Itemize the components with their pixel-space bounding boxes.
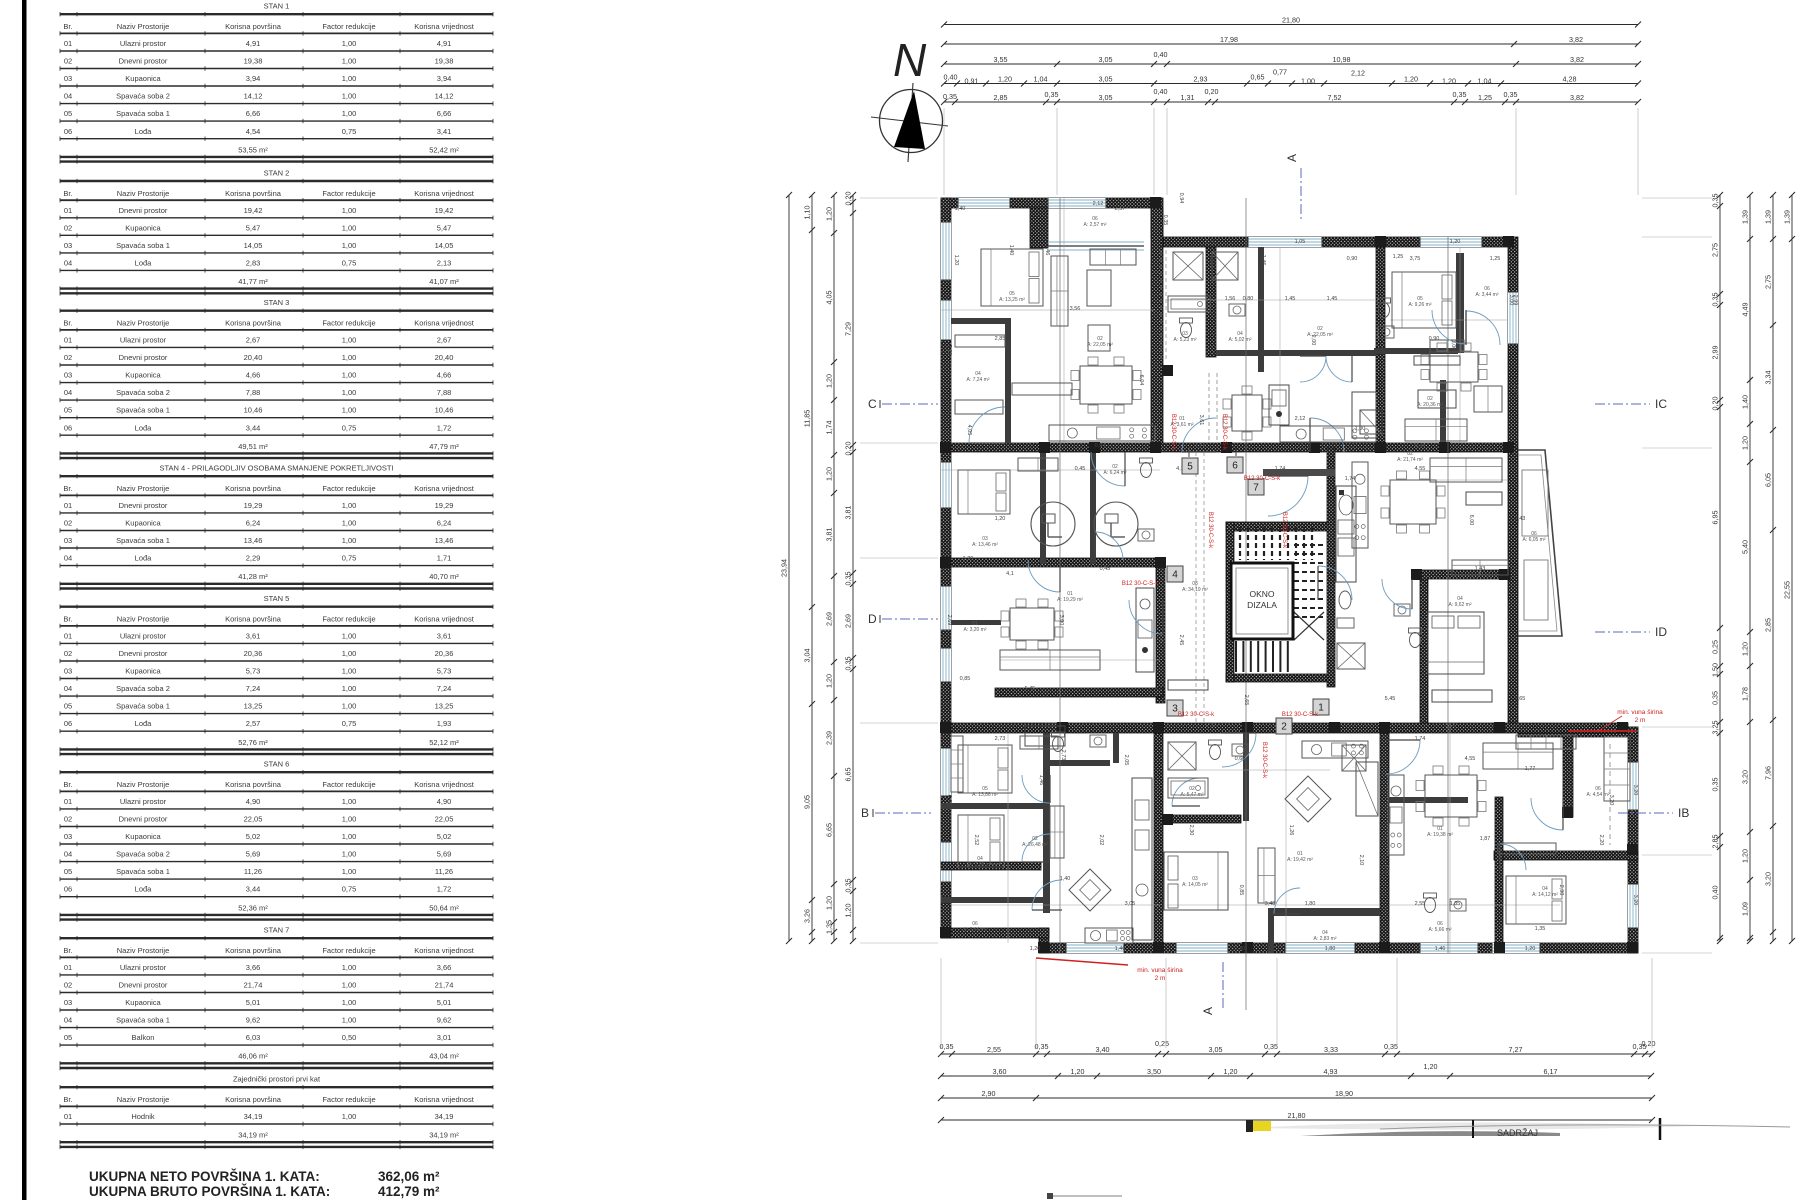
svg-text:0,40: 0,40: [944, 73, 958, 82]
svg-text:Zajednički prostori prvi kat: Zajednički prostori prvi kat: [233, 1075, 321, 1084]
svg-text:1,04: 1,04: [1034, 75, 1048, 84]
svg-text:04: 04: [64, 259, 72, 268]
svg-text:3,61: 3,61: [1198, 415, 1204, 426]
svg-text:6: 6: [1232, 461, 1238, 472]
svg-text:2,30: 2,30: [1188, 825, 1194, 836]
svg-text:4,91: 4,91: [246, 39, 261, 48]
svg-text:1,74: 1,74: [1415, 736, 1426, 742]
svg-text:2,12: 2,12: [1295, 416, 1306, 422]
svg-text:3,48: 3,48: [1265, 901, 1276, 907]
svg-text:7,88: 7,88: [246, 388, 261, 397]
svg-text:A: 6,24 m²: A: 6,24 m²: [1103, 470, 1126, 476]
svg-text:4,05: 4,05: [825, 291, 834, 305]
svg-text:13,25: 13,25: [435, 702, 454, 711]
svg-text:1,46: 1,46: [1115, 946, 1126, 952]
svg-text:0,35: 0,35: [940, 1042, 954, 1051]
svg-text:Korisna površina: Korisna površina: [225, 484, 282, 493]
svg-text:3,34: 3,34: [1764, 371, 1773, 385]
svg-text:A: 9,26 m²: A: 9,26 m²: [1408, 302, 1431, 308]
svg-text:03: 03: [64, 998, 72, 1007]
svg-text:06: 06: [64, 127, 72, 136]
svg-text:2,55: 2,55: [987, 1045, 1001, 1054]
svg-text:1,40: 1,40: [1008, 245, 1014, 256]
svg-text:1,20: 1,20: [1205, 723, 1216, 729]
svg-text:3,50: 3,50: [1147, 1067, 1161, 1076]
svg-text:3,05: 3,05: [1099, 93, 1113, 102]
svg-text:D: D: [868, 612, 877, 626]
svg-text:A: 6,05 m²: A: 6,05 m²: [1522, 537, 1545, 543]
svg-text:6,05: 6,05: [1764, 473, 1773, 487]
svg-text:5,45: 5,45: [1415, 443, 1426, 449]
svg-text:1,35: 1,35: [825, 920, 834, 934]
svg-text:STAN 7: STAN 7: [264, 926, 290, 935]
svg-text:0,35: 0,35: [844, 657, 853, 671]
svg-text:3,82: 3,82: [1569, 35, 1583, 44]
svg-text:1,71: 1,71: [437, 554, 452, 563]
svg-text:Kupaonica: Kupaonica: [125, 223, 161, 232]
svg-text:19,42: 19,42: [244, 206, 263, 215]
svg-text:1,39: 1,39: [1764, 210, 1773, 224]
svg-text:11,85: 11,85: [803, 410, 812, 427]
svg-text:1,74: 1,74: [1195, 443, 1206, 449]
svg-text:Spavaća soba 1: Spavaća soba 1: [116, 702, 170, 711]
svg-text:Lođa: Lođa: [135, 554, 153, 563]
svg-text:0,75: 0,75: [342, 423, 357, 432]
svg-text:1,46: 1,46: [1260, 255, 1266, 266]
svg-text:1,00: 1,00: [342, 1112, 357, 1121]
svg-text:Hodnik: Hodnik: [131, 1112, 155, 1121]
svg-text:1,46: 1,46: [1435, 946, 1446, 952]
svg-text:A: 13,46 m²: A: 13,46 m²: [972, 542, 998, 548]
svg-text:22,05: 22,05: [435, 815, 454, 824]
svg-text:7: 7: [1253, 483, 1259, 494]
svg-text:2,75: 2,75: [1711, 243, 1720, 257]
svg-text:1,20: 1,20: [825, 374, 834, 388]
svg-text:52,36 m²: 52,36 m²: [238, 903, 268, 912]
svg-text:Factor redukcije: Factor redukcije: [322, 946, 375, 955]
svg-text:5,02: 5,02: [437, 832, 452, 841]
svg-text:0,35: 0,35: [1504, 90, 1518, 99]
svg-text:02: 02: [64, 57, 72, 66]
svg-text:34,19 m²: 34,19 m²: [238, 1131, 268, 1140]
svg-text:B12 30-C-S-k: B12 30-C-S-k: [1178, 712, 1215, 718]
svg-text:1,00: 1,00: [342, 981, 357, 990]
svg-text:0,20: 0,20: [844, 192, 853, 206]
svg-text:1,00: 1,00: [342, 39, 357, 48]
svg-text:3,20: 3,20: [1741, 770, 1750, 784]
svg-text:A: 3,20 m²: A: 3,20 m²: [963, 627, 986, 633]
svg-text:5,45: 5,45: [1025, 686, 1036, 692]
svg-text:14,05: 14,05: [435, 241, 454, 250]
svg-text:0,94: 0,94: [1095, 443, 1106, 449]
svg-text:2,45: 2,45: [1178, 635, 1184, 646]
svg-text:2: 2: [1281, 722, 1287, 733]
svg-text:3,05: 3,05: [1099, 75, 1113, 84]
svg-text:6,17: 6,17: [1544, 1067, 1558, 1076]
svg-text:1,20: 1,20: [1424, 1062, 1438, 1071]
svg-text:34,19 m²: 34,19 m²: [429, 1131, 459, 1140]
svg-text:6,66: 6,66: [437, 109, 452, 118]
svg-text:IC: IC: [1655, 397, 1667, 411]
svg-text:0,75: 0,75: [342, 259, 357, 268]
svg-text:A: 4,54 m²: A: 4,54 m²: [1586, 792, 1609, 798]
svg-text:01: 01: [64, 501, 72, 510]
svg-text:3,04: 3,04: [803, 649, 812, 663]
svg-text:10,46: 10,46: [435, 406, 454, 415]
svg-text:1,20: 1,20: [1030, 946, 1041, 952]
svg-text:4,93: 4,93: [1045, 723, 1056, 729]
svg-text:A: 19,38 m²: A: 19,38 m²: [1427, 832, 1453, 838]
svg-text:06: 06: [64, 885, 72, 894]
svg-text:01: 01: [64, 963, 72, 972]
svg-text:Br.: Br.: [63, 780, 72, 789]
svg-text:Kupaonica: Kupaonica: [125, 667, 161, 676]
svg-text:A: A: [1285, 154, 1299, 162]
svg-text:4: 4: [1172, 570, 1178, 581]
svg-text:3,20: 3,20: [1632, 895, 1638, 906]
svg-text:Ulazni prostor: Ulazni prostor: [120, 963, 167, 972]
svg-text:0,91: 0,91: [965, 77, 979, 86]
svg-text:1,00: 1,00: [342, 109, 357, 118]
svg-text:Spavaća soba 2: Spavaća soba 2: [116, 388, 170, 397]
svg-text:1,97: 1,97: [1158, 635, 1164, 646]
svg-text:6,03: 6,03: [246, 1033, 261, 1042]
svg-text:Kupaonica: Kupaonica: [125, 74, 161, 83]
svg-text:3,82: 3,82: [1570, 93, 1584, 102]
svg-text:02: 02: [64, 353, 72, 362]
svg-text:B12 30-C-S-k: B12 30-C-S-k: [1207, 512, 1213, 549]
svg-text:4,1: 4,1: [1006, 571, 1014, 577]
svg-text:Spavaća soba 2: Spavaća soba 2: [116, 684, 170, 693]
svg-text:2,13: 2,13: [437, 259, 452, 268]
svg-text:19,38: 19,38: [435, 57, 454, 66]
svg-text:0,35: 0,35: [844, 879, 853, 893]
svg-text:1,43: 1,43: [1515, 516, 1526, 522]
svg-text:Lođa: Lođa: [135, 127, 153, 136]
svg-text:3,00: 3,00: [1058, 615, 1064, 626]
svg-text:Br.: Br.: [63, 22, 72, 31]
svg-text:7,29: 7,29: [844, 322, 853, 336]
svg-text:3,55: 3,55: [994, 55, 1008, 64]
svg-text:A: 19,29 m²: A: 19,29 m²: [1057, 597, 1083, 603]
svg-text:Lođa: Lođa: [135, 719, 153, 728]
svg-text:41,28 m²: 41,28 m²: [238, 572, 268, 581]
svg-text:0,20: 0,20: [1642, 1039, 1656, 1048]
svg-text:3,20: 3,20: [1608, 795, 1614, 806]
svg-text:1,40: 1,40: [1235, 946, 1246, 952]
svg-text:0,35: 0,35: [844, 572, 853, 586]
svg-text:Spavaća soba 1: Spavaća soba 1: [116, 241, 170, 250]
svg-text:Factor redukcije: Factor redukcije: [322, 1095, 375, 1104]
svg-text:3,20: 3,20: [1632, 785, 1638, 796]
svg-text:A: 22,05 m²: A: 22,05 m²: [1087, 342, 1113, 348]
svg-text:A: 14,05 m²: A: 14,05 m²: [1182, 882, 1208, 888]
svg-text:1,20: 1,20: [1071, 1067, 1085, 1076]
svg-text:2,65: 2,65: [1243, 695, 1249, 706]
svg-text:Lođa: Lođa: [135, 259, 153, 268]
svg-text:1,50: 1,50: [1711, 663, 1720, 677]
svg-text:3,20: 3,20: [1764, 872, 1773, 886]
svg-text:1,80: 1,80: [1325, 946, 1336, 952]
svg-text:Spavaća soba 2: Spavaća soba 2: [116, 92, 170, 101]
svg-text:2,90: 2,90: [1558, 885, 1564, 896]
svg-text:B12 30-C-S-k: B12 30-C-S-k: [1282, 712, 1319, 718]
svg-text:1,05: 1,05: [1295, 239, 1306, 245]
svg-text:1,20: 1,20: [825, 467, 834, 481]
svg-text:6,00: 6,00: [1468, 515, 1474, 526]
svg-text:0,20: 0,20: [1205, 87, 1219, 96]
svg-text:4,66: 4,66: [437, 371, 452, 380]
svg-text:Kupaonica: Kupaonica: [125, 832, 161, 841]
svg-text:STAN 5: STAN 5: [264, 594, 290, 603]
svg-text:34,19: 34,19: [435, 1112, 454, 1121]
svg-text:20,40: 20,40: [244, 353, 263, 362]
svg-text:Dnevni prostor: Dnevni prostor: [119, 353, 168, 362]
svg-text:6,95: 6,95: [1711, 511, 1720, 525]
svg-text:Naziv Prostorije: Naziv Prostorije: [117, 484, 170, 493]
svg-text:03: 03: [64, 74, 72, 83]
svg-text:B12 30-C-S-k: B12 30-C-S-k: [1122, 581, 1159, 587]
svg-text:06: 06: [64, 719, 72, 728]
svg-text:52,12 m²: 52,12 m²: [429, 738, 459, 747]
svg-text:6,65: 6,65: [844, 768, 853, 782]
svg-text:STAN 3: STAN 3: [264, 298, 290, 307]
svg-text:21,80: 21,80: [1282, 16, 1300, 25]
svg-text:A: A: [1201, 1007, 1215, 1015]
svg-text:2,85: 2,85: [995, 336, 1006, 342]
svg-text:20,40: 20,40: [435, 353, 454, 362]
svg-text:1,74: 1,74: [825, 421, 834, 435]
svg-text:1,20: 1,20: [1741, 849, 1750, 863]
svg-text:3,60: 3,60: [993, 1067, 1007, 1076]
svg-text:1,43: 1,43: [1475, 566, 1486, 572]
svg-text:1,00: 1,00: [342, 336, 357, 345]
svg-text:18,90: 18,90: [1335, 1089, 1353, 1098]
svg-text:Br.: Br.: [63, 1095, 72, 1104]
svg-text:20,36: 20,36: [244, 649, 263, 658]
svg-text:7,96: 7,96: [1764, 766, 1773, 780]
svg-text:3,00: 3,00: [1450, 340, 1456, 351]
svg-text:2,02: 2,02: [1098, 835, 1104, 846]
svg-text:1,20: 1,20: [1450, 239, 1461, 245]
svg-text:1,04: 1,04: [1478, 77, 1492, 86]
svg-text:1,35: 1,35: [1450, 901, 1461, 907]
svg-text:A: 3,44 m²: A: 3,44 m²: [1475, 292, 1498, 298]
svg-text:1,00: 1,00: [342, 388, 357, 397]
svg-text:2,20: 2,20: [1598, 835, 1604, 846]
svg-text:Korisna površina: Korisna površina: [225, 189, 282, 198]
svg-text:1: 1: [1318, 703, 1324, 714]
svg-text:Spavaća soba 2: Spavaća soba 2: [116, 850, 170, 859]
svg-text:7,24: 7,24: [437, 684, 452, 693]
svg-text:52,42 m²: 52,42 m²: [429, 145, 459, 154]
svg-text:3,01: 3,01: [437, 1033, 452, 1042]
svg-text:Br.: Br.: [63, 319, 72, 328]
svg-text:9,05: 9,05: [803, 795, 812, 809]
svg-text:5,73: 5,73: [437, 667, 452, 676]
svg-text:21,74: 21,74: [435, 981, 454, 990]
svg-text:22,55: 22,55: [1783, 581, 1792, 599]
svg-text:03: 03: [64, 241, 72, 250]
svg-text:Balkon: Balkon: [132, 1033, 155, 1042]
svg-text:0,90: 0,90: [1429, 336, 1440, 342]
svg-text:1,25: 1,25: [1478, 93, 1492, 102]
svg-text:19,29: 19,29: [244, 501, 263, 510]
svg-text:0,35: 0,35: [1711, 691, 1720, 705]
svg-text:05: 05: [64, 109, 72, 118]
svg-text:1,20: 1,20: [844, 904, 853, 918]
svg-text:A: 13,86 m²: A: 13,86 m²: [972, 792, 998, 798]
svg-text:1,77: 1,77: [1525, 766, 1536, 772]
svg-text:4,28: 4,28: [1563, 75, 1577, 84]
svg-text:1,72: 1,72: [437, 885, 452, 894]
svg-text:01: 01: [64, 1112, 72, 1121]
svg-text:4,93: 4,93: [1324, 1067, 1338, 1076]
svg-text:3,05: 3,05: [1125, 901, 1136, 907]
svg-text:412,79 m²: 412,79 m²: [378, 1184, 440, 1199]
svg-text:STAN 2: STAN 2: [264, 168, 290, 177]
svg-text:19,29: 19,29: [435, 501, 454, 510]
svg-text:0,75: 0,75: [342, 719, 357, 728]
svg-text:7,27: 7,27: [1509, 1045, 1523, 1054]
svg-text:21,74: 21,74: [244, 981, 263, 990]
svg-text:6,24: 6,24: [246, 519, 261, 528]
svg-text:0,35: 0,35: [943, 92, 957, 101]
svg-text:B12 30-C-S-k: B12 30-C-S-k: [1261, 742, 1267, 779]
svg-text:0,80: 0,80: [1243, 296, 1254, 302]
svg-text:0,25: 0,25: [1711, 640, 1720, 654]
svg-text:1,35: 1,35: [1535, 926, 1546, 932]
svg-text:02: 02: [64, 815, 72, 824]
svg-text:6,65: 6,65: [825, 823, 834, 837]
svg-text:6,17: 6,17: [1445, 723, 1456, 729]
svg-text:0,75: 0,75: [342, 885, 357, 894]
svg-text:Naziv Prostorije: Naziv Prostorije: [117, 319, 170, 328]
svg-text:A: 7,08 m²: A: 7,08 m²: [968, 862, 991, 868]
svg-text:A: 14,12 m²: A: 14,12 m²: [1532, 892, 1558, 898]
svg-text:10,98: 10,98: [1333, 55, 1351, 64]
svg-text:B12 30-C-S-k: B12 30-C-S-k: [1221, 414, 1227, 451]
svg-text:Spavaća soba 1: Spavaća soba 1: [116, 867, 170, 876]
svg-text:13,25: 13,25: [244, 702, 263, 711]
svg-text:B: B: [861, 806, 869, 820]
svg-text:02: 02: [64, 223, 72, 232]
svg-text:0,45: 0,45: [1100, 566, 1111, 572]
svg-text:1,20: 1,20: [1442, 77, 1456, 86]
svg-text:1,93: 1,93: [437, 719, 452, 728]
svg-text:3,82: 3,82: [1570, 55, 1584, 64]
svg-text:6,24: 6,24: [437, 519, 452, 528]
svg-text:4,55: 4,55: [1415, 466, 1426, 472]
svg-text:2 m: 2 m: [1635, 717, 1646, 724]
svg-text:1,00: 1,00: [342, 667, 357, 676]
svg-text:0,35: 0,35: [1711, 778, 1720, 792]
svg-text:04: 04: [64, 554, 72, 563]
svg-text:0,35: 0,35: [1264, 1042, 1278, 1051]
svg-text:01: 01: [64, 797, 72, 806]
svg-text:03: 03: [64, 536, 72, 545]
svg-text:3,75: 3,75: [1410, 256, 1421, 262]
svg-text:A: 13,25 m²: A: 13,25 m²: [999, 297, 1025, 303]
svg-text:19,38: 19,38: [244, 57, 263, 66]
svg-text:5,45: 5,45: [1385, 696, 1396, 702]
svg-text:1,80: 1,80: [1305, 901, 1316, 907]
svg-text:1,00: 1,00: [342, 797, 357, 806]
svg-text:1,00: 1,00: [342, 963, 357, 972]
svg-text:Br.: Br.: [63, 946, 72, 955]
svg-text:STAN 6: STAN 6: [264, 760, 290, 769]
svg-text:Ulazni prostor: Ulazni prostor: [120, 39, 167, 48]
svg-text:1,40: 1,40: [1060, 876, 1071, 882]
svg-text:4,90: 4,90: [246, 797, 261, 806]
svg-text:2,73: 2,73: [995, 736, 1006, 742]
svg-text:50,64 m²: 50,64 m²: [429, 903, 459, 912]
svg-text:A: 21,74 m²: A: 21,74 m²: [1397, 457, 1423, 463]
svg-text:Factor redukcije: Factor redukcije: [322, 780, 375, 789]
svg-text:A: 26,48 m²: A: 26,48 m²: [1022, 842, 1048, 848]
svg-text:4,54: 4,54: [246, 127, 261, 136]
svg-text:5,40: 5,40: [1741, 540, 1750, 554]
svg-text:Korisna vrijednost: Korisna vrijednost: [414, 946, 475, 955]
svg-text:1,00: 1,00: [342, 206, 357, 215]
svg-text:4,66: 4,66: [246, 371, 261, 380]
svg-text:1,74: 1,74: [1345, 476, 1356, 482]
svg-text:1,00: 1,00: [342, 74, 357, 83]
svg-text:Korisna vrijednost: Korisna vrijednost: [414, 484, 475, 493]
svg-text:3,81: 3,81: [825, 528, 834, 542]
svg-text:49,51 m²: 49,51 m²: [238, 442, 268, 451]
svg-text:Ulazni prostor: Ulazni prostor: [120, 632, 167, 641]
svg-text:SADRŽAJ: SADRŽAJ: [1497, 1128, 1538, 1138]
svg-text:A: 9,62 m²: A: 9,62 m²: [1448, 602, 1471, 608]
svg-text:04: 04: [64, 850, 72, 859]
svg-text:1,00: 1,00: [342, 815, 357, 824]
svg-text:01: 01: [64, 39, 72, 48]
svg-text:23,94: 23,94: [780, 559, 789, 577]
svg-text:04: 04: [64, 388, 72, 397]
svg-text:1,00: 1,00: [342, 867, 357, 876]
svg-text:0,25: 0,25: [1155, 1039, 1169, 1048]
svg-text:1,00: 1,00: [342, 406, 357, 415]
svg-text:2,29: 2,29: [246, 554, 261, 563]
svg-text:Naziv Prostorije: Naziv Prostorije: [117, 946, 170, 955]
svg-text:STAN 4 - PRILAGODLJIV OSOBAMA: STAN 4 - PRILAGODLJIV OSOBAMA SMANJENE P…: [159, 464, 393, 473]
svg-text:4,05: 4,05: [966, 425, 972, 436]
svg-text:min. vuna širina: min. vuna širina: [1137, 967, 1183, 974]
svg-text:Br.: Br.: [63, 615, 72, 624]
svg-text:3,61: 3,61: [437, 632, 452, 641]
svg-text:4,91: 4,91: [437, 39, 452, 48]
svg-text:13,46: 13,46: [244, 536, 263, 545]
svg-text:0,40: 0,40: [1711, 886, 1720, 900]
svg-text:Dnevni prostor: Dnevni prostor: [119, 981, 168, 990]
svg-text:06: 06: [64, 423, 72, 432]
svg-text:0,40: 0,40: [1154, 87, 1168, 96]
svg-text:Korisna vrijednost: Korisna vrijednost: [414, 319, 475, 328]
svg-text:2,73: 2,73: [1060, 750, 1066, 761]
svg-text:2,85: 2,85: [1711, 835, 1720, 849]
svg-text:1,20: 1,20: [1224, 1067, 1238, 1076]
svg-text:Dnevni prostor: Dnevni prostor: [119, 649, 168, 658]
svg-text:1,00: 1,00: [342, 632, 357, 641]
svg-text:2,12: 2,12: [1093, 201, 1104, 207]
svg-text:41,07 m²: 41,07 m²: [429, 277, 459, 286]
svg-text:Korisna površina: Korisna površina: [225, 22, 282, 31]
svg-text:05: 05: [64, 702, 72, 711]
svg-text:DIZALA: DIZALA: [1247, 600, 1277, 610]
svg-text:C: C: [868, 397, 877, 411]
svg-text:9,62: 9,62: [437, 1016, 452, 1025]
